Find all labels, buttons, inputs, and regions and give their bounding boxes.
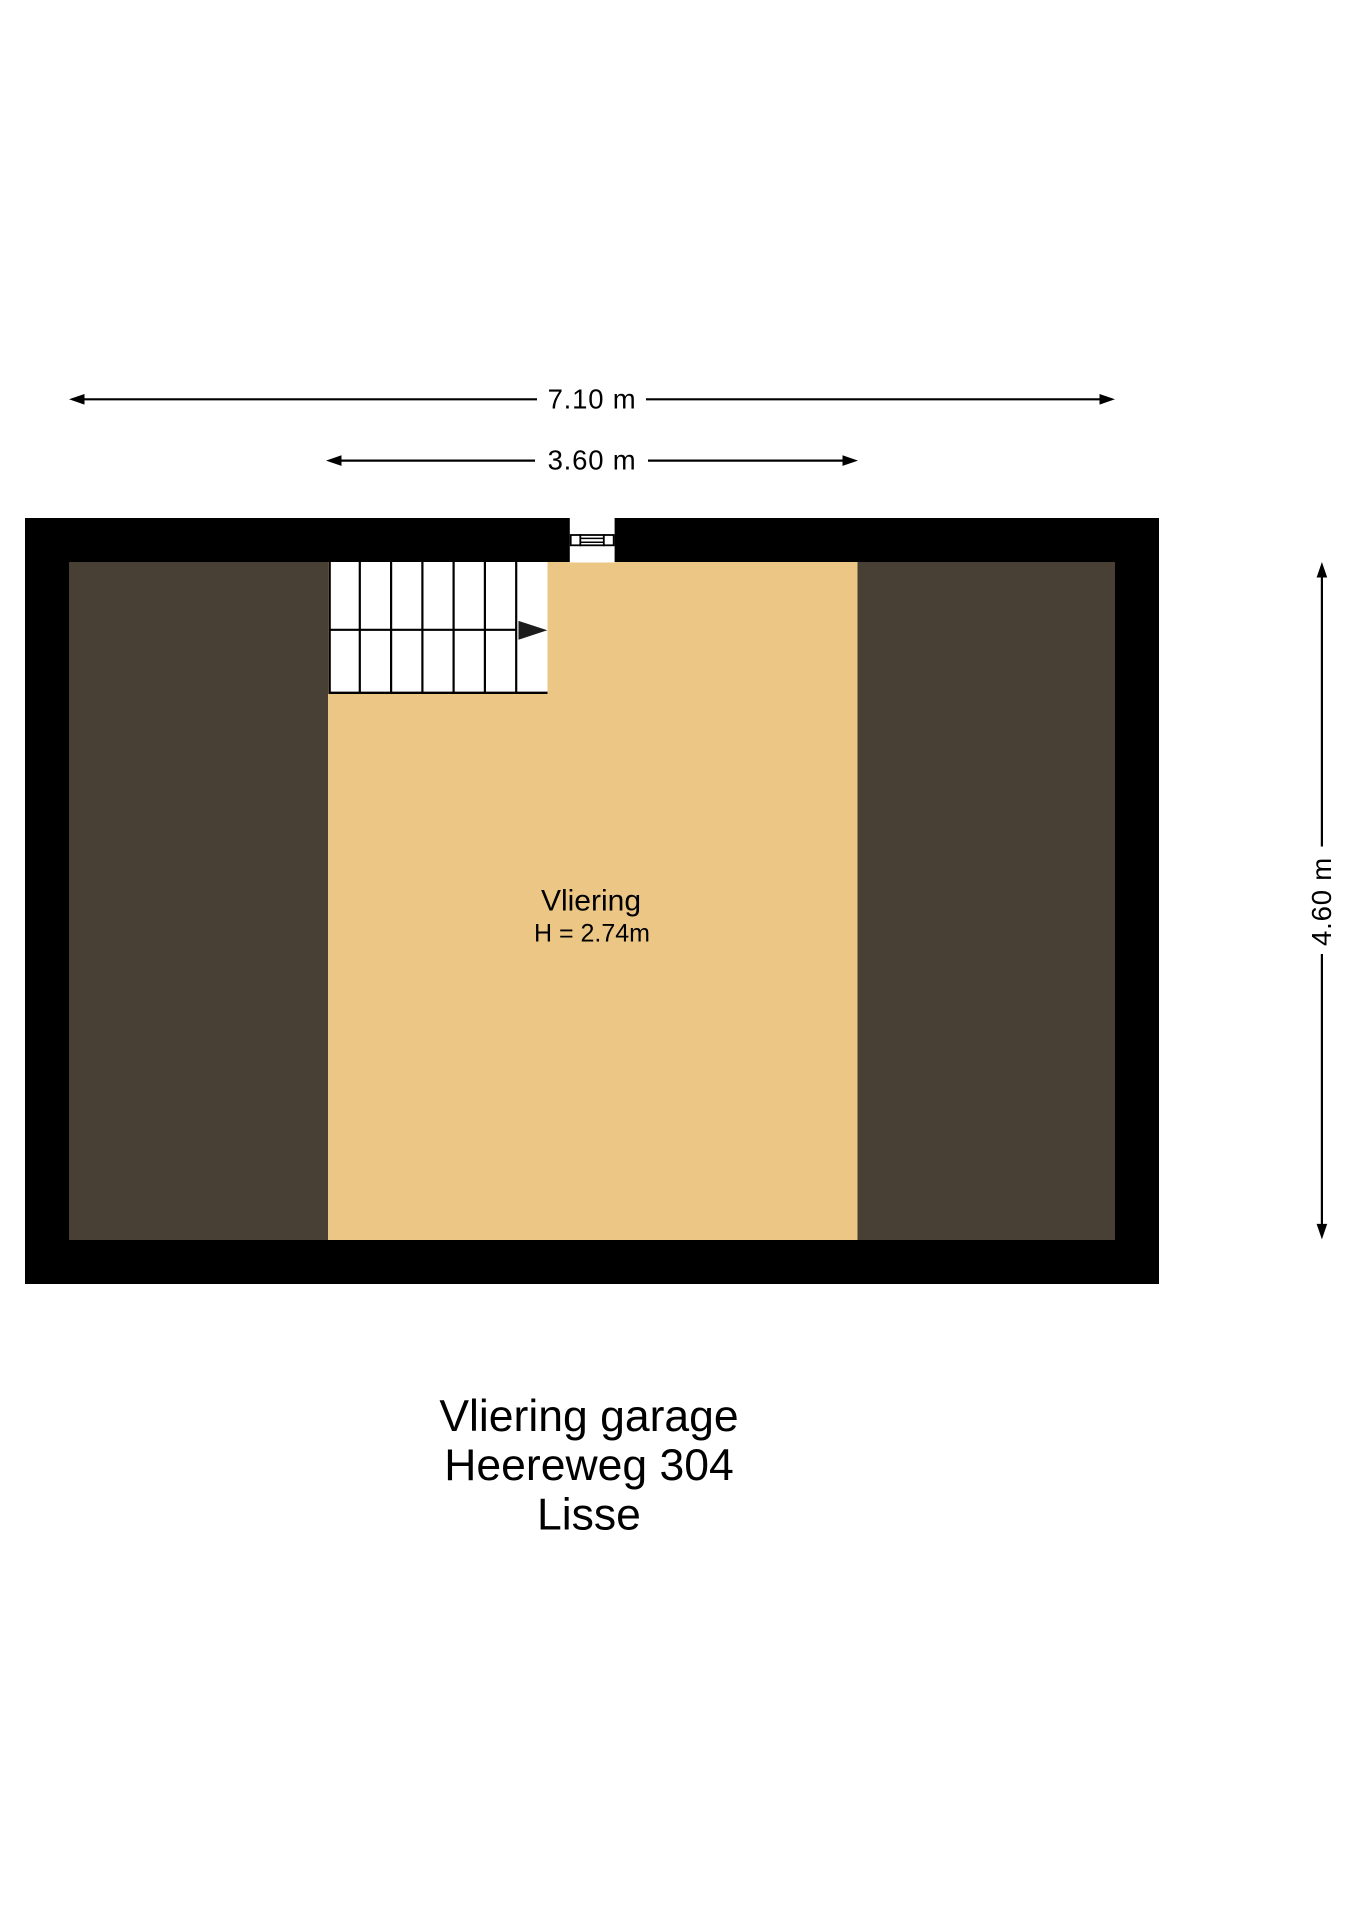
svg-text:Heereweg 304: Heereweg 304 bbox=[444, 1441, 733, 1490]
svg-text:3.60 m: 3.60 m bbox=[548, 445, 637, 476]
svg-text:7.10 m: 7.10 m bbox=[548, 383, 637, 414]
svg-text:H = 2.74m: H = 2.74m bbox=[534, 920, 650, 948]
svg-text:4.60 m: 4.60 m bbox=[1306, 857, 1337, 946]
svg-text:Vliering garage: Vliering garage bbox=[439, 1392, 738, 1441]
svg-text:Lisse: Lisse bbox=[537, 1491, 641, 1540]
svg-text:Vliering: Vliering bbox=[541, 885, 641, 918]
